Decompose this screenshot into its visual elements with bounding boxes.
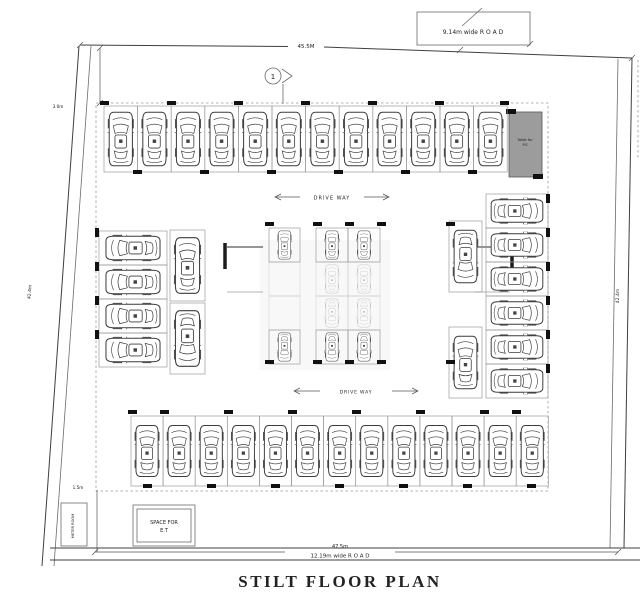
column-tick [265, 222, 274, 226]
car-icon [491, 198, 543, 225]
car-icon [294, 425, 321, 476]
car-icon [491, 300, 543, 327]
floor-plan-svg: 45.5M 9.14m wide R O A D 42.4m 42.4m 3.0… [0, 0, 644, 600]
left-dimension-label: 42.4m [27, 285, 34, 300]
column-tick [480, 410, 489, 414]
section-marker-number: 1 [271, 73, 275, 81]
column-tick [546, 296, 550, 305]
plan-title: STILT FLOOR PLAN [238, 572, 441, 591]
column-tick [224, 410, 233, 414]
space-et-label-2: E.T [160, 528, 169, 534]
car-icon [173, 238, 202, 294]
car-icon [342, 112, 370, 165]
car-icon [326, 425, 353, 476]
car-icon [277, 333, 292, 361]
car-icon [166, 425, 193, 476]
car-icon [277, 231, 292, 259]
car-icon [173, 311, 202, 367]
column-tick [95, 296, 99, 305]
column-tick [334, 170, 343, 174]
car-icon [519, 425, 546, 476]
column-tick [377, 360, 386, 364]
column-tick [446, 222, 455, 226]
column-tick [500, 101, 509, 105]
car-icon [106, 302, 160, 330]
car-icon [106, 234, 160, 262]
car-icon [357, 333, 372, 361]
car-icon [325, 299, 340, 327]
column-tick [143, 484, 152, 488]
space-et-label-1: SPACE FOR [150, 520, 178, 526]
car-icon [106, 268, 160, 296]
column-tick [265, 360, 274, 364]
column-tick [546, 228, 550, 237]
car-icon [230, 425, 257, 476]
car-icon [208, 112, 236, 165]
car-icon [107, 112, 135, 165]
column-tick [368, 101, 377, 105]
column-tick [335, 484, 344, 488]
column-tick [313, 360, 322, 364]
car-icon [140, 112, 168, 165]
car-icon [357, 299, 372, 327]
column-tick [133, 170, 142, 174]
column-tick [95, 228, 99, 237]
top-road-callout: 9.14m wide R O A D [417, 8, 530, 45]
column-tick [377, 222, 386, 226]
column-tick [160, 410, 169, 414]
setback-dimension-top: 3.0m [53, 45, 103, 109]
top-road-label: 9.14m wide R O A D [443, 29, 504, 36]
column-tick [288, 410, 297, 414]
toilet-label-2: P.S [522, 143, 528, 147]
column-tick [301, 101, 310, 105]
right-dimension-label: 42.4m [615, 289, 621, 303]
column-tick [446, 360, 455, 364]
car-icon [455, 425, 482, 476]
car-icon [491, 232, 543, 259]
column-tick [512, 410, 521, 414]
meter-room-label: METER ROOM [71, 514, 75, 539]
column-tick [463, 484, 472, 488]
car-icon [409, 112, 437, 165]
column-tick [546, 330, 550, 339]
setback-bottom-label: 1.5m [73, 485, 84, 490]
column-tick [167, 101, 176, 105]
column-tick [95, 330, 99, 339]
car-icon [174, 112, 202, 165]
car-icon [452, 230, 479, 282]
top-dimension-label: 45.5M [298, 44, 315, 50]
column-tick [546, 262, 550, 271]
car-icon [476, 112, 504, 165]
column-tick [546, 364, 550, 373]
space-for-et-box: SPACE FOR E.T [133, 505, 195, 546]
toilet-label-1: Toilet for [516, 138, 533, 142]
car-icon [325, 231, 340, 259]
setback-top-label: 3.0m [53, 104, 64, 109]
column-tick [345, 360, 354, 364]
meter-room-box: METER ROOM [61, 503, 87, 546]
car-icon [358, 425, 385, 476]
column-tick [313, 222, 322, 226]
column-tick [435, 101, 444, 105]
bottom-dimension-label: 47.5m [332, 544, 348, 550]
column-tick [100, 101, 109, 105]
column-tick [267, 170, 276, 174]
car-icon [308, 112, 336, 165]
driveway-lower-label: DRIVE WAY [340, 390, 373, 396]
column-tick [468, 170, 477, 174]
car-icon [198, 425, 225, 476]
column-tick [234, 101, 243, 105]
column-tick [345, 222, 354, 226]
column-tick [200, 170, 209, 174]
column-tick [527, 484, 536, 488]
car-icon [275, 112, 303, 165]
car-icon [491, 266, 543, 293]
column-tick [128, 410, 137, 414]
column-tick [546, 194, 550, 203]
car-icon [357, 231, 372, 259]
bottom-road-label: 12.19m wide R O A D [311, 554, 370, 560]
driveway-lower: DRIVE WAY [294, 388, 418, 396]
section-marker: 1 [265, 68, 292, 104]
column-tick [399, 484, 408, 488]
car-icon [241, 112, 269, 165]
car-icon [443, 112, 471, 165]
stilt-floor-plan: 45.5M 9.14m wide R O A D 42.4m 42.4m 3.0… [0, 0, 644, 600]
car-icon [134, 425, 161, 476]
car-icon [391, 425, 418, 476]
column-tick [401, 170, 410, 174]
car-icon [325, 265, 340, 293]
car-icon [262, 425, 289, 476]
column-tick [95, 262, 99, 271]
car-icon [491, 334, 543, 361]
car-icon [325, 333, 340, 361]
car-icon [106, 336, 160, 364]
column-tick [271, 484, 280, 488]
toilet-block: Toilet for P.S [506, 109, 543, 179]
car-icon [487, 425, 514, 476]
car-icon [376, 112, 404, 165]
driveway-upper-label: DRIVE WAY [314, 196, 351, 202]
car-icon [357, 265, 372, 293]
driveway-upper: DRIVE WAY [275, 194, 389, 202]
car-icon [452, 336, 479, 388]
column-tick [416, 410, 425, 414]
column-tick [207, 484, 216, 488]
section-flag-icon [282, 69, 292, 83]
column-tick [352, 410, 361, 414]
car-icon [423, 425, 450, 476]
car-icon [491, 368, 543, 395]
